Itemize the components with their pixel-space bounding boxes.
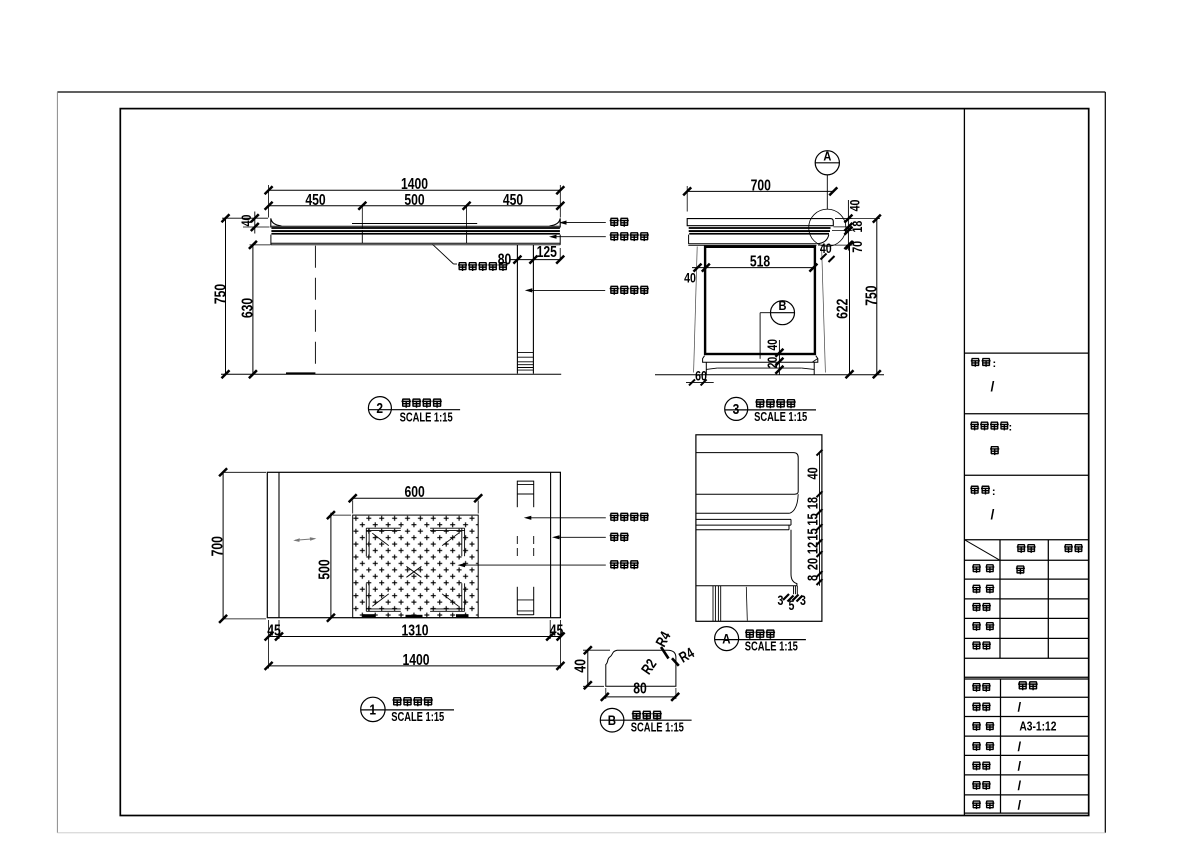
svg-text::: :: [992, 486, 996, 498]
svg-text:8: 8: [804, 575, 821, 581]
svg-text:/: /: [991, 378, 995, 394]
svg-text:45: 45: [550, 622, 564, 640]
svg-text:450: 450: [503, 191, 523, 209]
svg-text:SCALE 1:15: SCALE 1:15: [754, 411, 807, 425]
svg-text:3: 3: [800, 593, 806, 609]
svg-text:/: /: [991, 506, 995, 522]
svg-text:40: 40: [572, 659, 590, 673]
svg-text:SCALE 1:15: SCALE 1:15: [631, 721, 684, 735]
svg-text:5: 5: [789, 598, 795, 614]
svg-text:700: 700: [209, 536, 227, 556]
svg-text:18: 18: [804, 497, 821, 509]
svg-text:750: 750: [863, 285, 881, 305]
svg-text:622: 622: [834, 298, 852, 318]
svg-text:3: 3: [733, 401, 740, 418]
svg-text:40: 40: [765, 339, 781, 351]
svg-text:/: /: [1018, 700, 1022, 715]
svg-text::: :: [993, 358, 997, 370]
svg-text:12: 12: [804, 542, 821, 554]
svg-text:750: 750: [212, 284, 230, 304]
svg-text:/: /: [1018, 759, 1022, 774]
svg-text::: :: [1009, 422, 1013, 434]
svg-text:18: 18: [850, 221, 866, 233]
svg-text:/: /: [1018, 778, 1022, 793]
svg-text:60: 60: [695, 368, 707, 384]
svg-text:3: 3: [778, 593, 784, 609]
svg-text:600: 600: [404, 484, 424, 502]
svg-text:20: 20: [765, 357, 781, 369]
svg-text:15: 15: [804, 513, 821, 525]
svg-text:15: 15: [804, 528, 821, 540]
svg-text:/: /: [1018, 739, 1022, 754]
svg-text:40: 40: [804, 467, 821, 479]
svg-text:A3-1:12: A3-1:12: [1019, 720, 1056, 733]
svg-text:125: 125: [537, 243, 557, 261]
svg-text:SCALE 1:15: SCALE 1:15: [400, 411, 453, 425]
svg-text:1310: 1310: [401, 622, 428, 640]
svg-text:/: /: [1018, 798, 1022, 813]
svg-text:700: 700: [751, 177, 771, 195]
svg-text:450: 450: [305, 191, 325, 209]
svg-text:500: 500: [316, 559, 334, 579]
svg-text:1400: 1400: [402, 651, 429, 669]
svg-text:20: 20: [804, 558, 821, 570]
svg-text:518: 518: [750, 253, 770, 271]
svg-text:500: 500: [404, 191, 424, 209]
svg-text:40: 40: [684, 270, 696, 286]
svg-text:45: 45: [267, 622, 281, 640]
svg-text:40: 40: [847, 200, 863, 212]
svg-text:40: 40: [239, 215, 255, 227]
svg-text:SCALE 1:15: SCALE 1:15: [391, 711, 444, 725]
svg-text:2: 2: [376, 400, 383, 417]
svg-text:630: 630: [239, 298, 257, 318]
svg-text:80: 80: [633, 680, 647, 698]
svg-text:SCALE 1:15: SCALE 1:15: [745, 640, 798, 654]
svg-text:B: B: [779, 298, 787, 313]
svg-text:A: A: [823, 148, 831, 163]
